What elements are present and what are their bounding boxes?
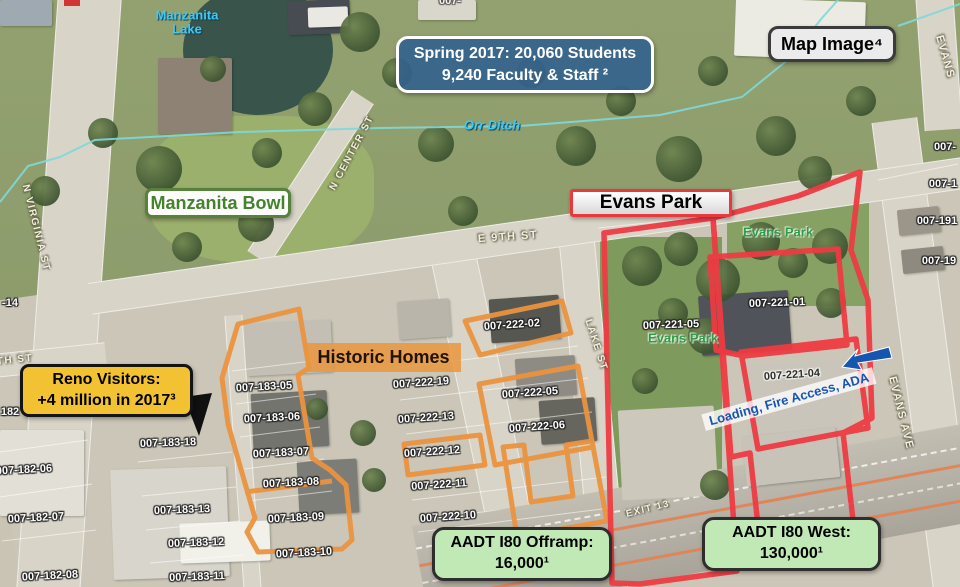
parcel-label: 007-183-13 xyxy=(154,503,211,517)
parcel-label-partial: 007-191 xyxy=(917,215,957,227)
parcel-label: 007-221-01 xyxy=(749,296,806,310)
parcel-label: 007-183-11 xyxy=(169,570,225,584)
historic-homes-band: Historic Homes xyxy=(306,343,461,372)
red-marker-partial xyxy=(64,0,80,6)
reno-visitors-callout: Reno Visitors: +4 million in 2017³ xyxy=(20,364,193,417)
aadt-west-line2: 130,000¹ xyxy=(705,544,878,565)
aadt-offramp-callout: AADT I80 Offramp: 16,000¹ xyxy=(432,527,612,581)
aadt-offramp-line1: AADT I80 Offramp: xyxy=(435,533,609,554)
parcel-label-partial: 007-1 xyxy=(929,178,957,190)
map-image-callout: Map Image⁴ xyxy=(768,26,896,62)
parcel-label-partial: 182 xyxy=(1,406,19,418)
historic-homes-label: Historic Homes xyxy=(317,347,449,367)
parcel-label: 007-221-05 xyxy=(643,318,700,332)
manzanita-lake-label-line1: Manzanita xyxy=(156,8,219,23)
parcel-label-partial: 007- xyxy=(934,141,956,153)
manzanita-bowl-label: Manzanita Bowl xyxy=(148,193,288,214)
map-image-label: Map Image⁴ xyxy=(771,34,893,55)
aadt-west-line1: AADT I80 West: xyxy=(705,523,878,544)
parcel-label-partial: 007-19 xyxy=(922,255,956,267)
parcel-label: 007-183-12 xyxy=(168,536,225,550)
manzanita-lake-label-line2: Lake xyxy=(172,22,202,37)
manzanita-bowl-callout: Manzanita Bowl xyxy=(145,188,291,218)
evans-park-label: Evans Park xyxy=(573,192,729,214)
parcel-label: 007-183-18 xyxy=(140,436,197,450)
evans-park-green-label: Evans Park xyxy=(648,331,718,346)
aadt-west-callout: AADT I80 West: 130,000¹ xyxy=(702,517,881,571)
campus-area-aerial-map: Manzanita Lake Orr Ditch Evans Park Evan… xyxy=(0,0,960,587)
parcel-label-partial: 007- xyxy=(439,0,461,7)
orr-ditch-label: Orr Ditch xyxy=(464,118,520,133)
stats-callout: Spring 2017: 20,060 Students 9,240 Facul… xyxy=(396,36,654,93)
stats-line1: Spring 2017: 20,060 Students xyxy=(399,43,651,65)
aadt-offramp-line2: 16,000¹ xyxy=(435,554,609,575)
stats-line2: 9,240 Faculty & Staff ² xyxy=(399,65,651,87)
parcel-label-partial: -14 xyxy=(2,297,18,309)
reno-visitors-line1: Reno Visitors: xyxy=(23,370,190,391)
evans-park-green-label: Evans Park xyxy=(743,225,813,240)
evans-park-callout: Evans Park xyxy=(570,189,732,217)
reno-visitors-line2: +4 million in 2017³ xyxy=(23,391,190,412)
